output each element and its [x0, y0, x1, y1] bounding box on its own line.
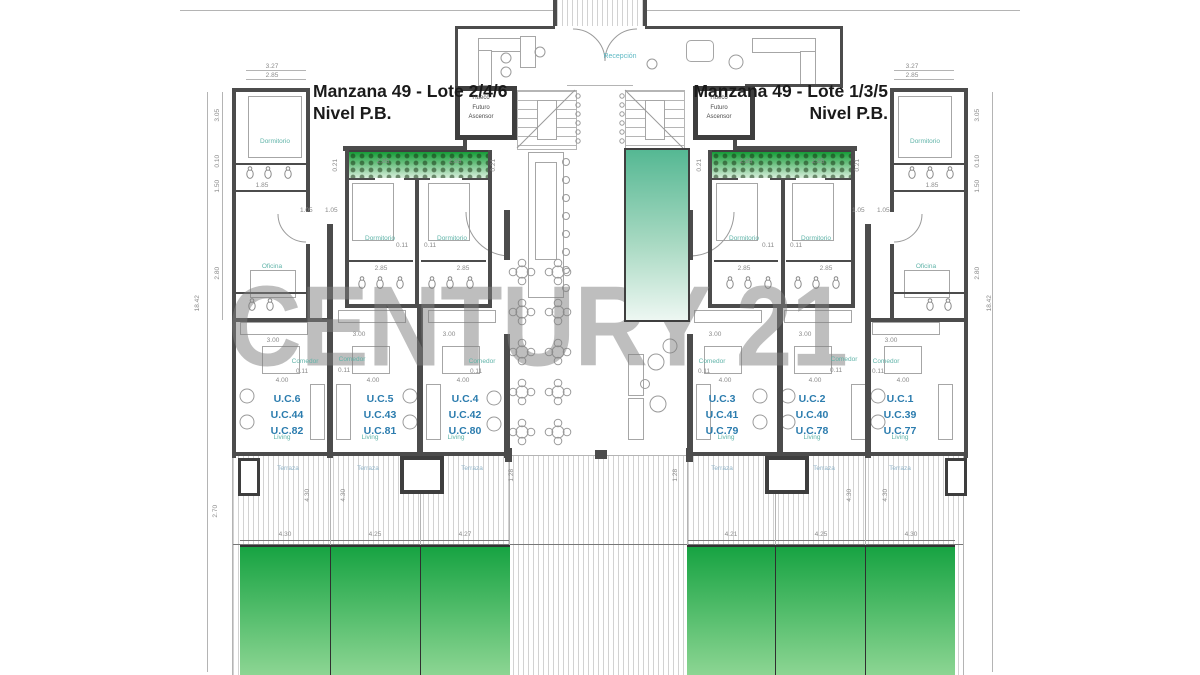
room-label-dormitorio: Dormitorio	[430, 236, 474, 243]
dim-label: 4.30	[896, 532, 926, 539]
dim-label: 0.21	[491, 159, 498, 172]
dim-label: 2.85	[440, 159, 470, 166]
terrace-label: Terraza	[268, 466, 308, 473]
dim-label: 1.50	[215, 180, 222, 193]
dim-label: 0.11	[338, 368, 350, 375]
elevator-label-left: Hueco Futuro Ascensor	[455, 94, 507, 123]
wall	[894, 163, 964, 165]
dim-label: 2.85	[811, 266, 841, 273]
wall	[890, 244, 894, 322]
room-label-oficina: Oficina	[250, 264, 294, 271]
wall	[687, 452, 964, 456]
floor-plan: CENTURY 21 Manzana 49 - Lote 2/4/6 Nivel…	[0, 0, 1200, 675]
room-label-comedor: Comedor	[824, 357, 864, 364]
wall	[840, 26, 843, 88]
dim-label: 2.85	[897, 73, 927, 80]
dim-label: 4.00	[800, 378, 830, 385]
terrace-planter	[765, 456, 809, 494]
dim-label: 3.27	[257, 64, 287, 71]
dim-label: 0.11	[424, 243, 436, 250]
dim-label: 4.25	[806, 532, 836, 539]
dim-label: 3.27	[897, 64, 927, 71]
terrace-label: Terraza	[452, 466, 492, 473]
dim-label: 2.80	[975, 267, 982, 280]
dim-label: 4.00	[358, 378, 388, 385]
dim-label: 4.00	[267, 378, 297, 385]
unit-codes: U.C.5 U.C.43 U.C.81	[345, 392, 415, 439]
dim-label: 2.85	[803, 159, 833, 166]
room-label-comedor: Comedor	[692, 359, 732, 366]
wall	[866, 318, 968, 322]
dim-label: 4.30	[305, 489, 312, 502]
terrace-step	[595, 450, 607, 459]
dim-label: 0.10	[215, 155, 222, 168]
dim-label: 0.11	[872, 369, 884, 376]
wall	[894, 190, 964, 192]
dim-label: 2.85	[448, 266, 478, 273]
dim-label: 18.42	[195, 295, 202, 311]
terrace-planter	[945, 458, 967, 496]
wall	[236, 163, 306, 165]
reception-label: Recepción	[580, 53, 660, 60]
garden-divider	[420, 545, 421, 675]
wall	[236, 190, 306, 192]
terrace-planter	[238, 458, 260, 496]
dim-label: 4.21	[716, 532, 746, 539]
dim-label: 1.05	[877, 208, 890, 215]
dim-label: 3.00	[258, 338, 288, 345]
century21-watermark: CENTURY 21	[228, 262, 847, 393]
room-label-dormitorio: Dormitorio	[253, 139, 297, 146]
wall	[890, 88, 968, 92]
garden-divider	[865, 545, 866, 675]
wall	[645, 26, 843, 29]
dim-label: 4.30	[883, 489, 890, 502]
room-label-comedor: Comedor	[332, 357, 372, 364]
dim-label: 3.05	[975, 109, 982, 122]
garden-right	[687, 545, 955, 675]
dim-label: 4.30	[847, 489, 854, 502]
room-label-oficina: Oficina	[904, 264, 948, 271]
dim-label: 3.00	[434, 332, 464, 339]
dim-label: 3.00	[876, 338, 906, 345]
dim-label: 0.21	[333, 159, 340, 172]
room-label-comedor: Comedor	[285, 359, 325, 366]
dim-label: 4.27	[450, 532, 480, 539]
unit-codes: U.C.1 U.C.39 U.C.77	[865, 392, 935, 439]
dim-label: 2.85	[366, 266, 396, 273]
dim-label: 3.05	[215, 109, 222, 122]
wall	[964, 322, 968, 458]
dim-label: 0.21	[855, 159, 862, 172]
terrace-label: Terraza	[880, 466, 920, 473]
dim-label: 0.21	[697, 159, 704, 172]
terrace-post	[686, 448, 693, 462]
dim-label: 2.85	[731, 159, 761, 166]
dim-label: 0.11	[830, 368, 842, 375]
room-label-dormitorio: Dormitorio	[903, 139, 947, 146]
dim-label: 2.85	[368, 159, 398, 166]
wall	[306, 88, 310, 212]
terrace-label: Terraza	[702, 466, 742, 473]
room-label-comedor: Comedor	[866, 359, 906, 366]
dim-label: 1.28	[509, 469, 516, 482]
unit-codes: U.C.4 U.C.42 U.C.80	[430, 392, 500, 439]
unit-codes: U.C.3 U.C.41 U.C.79	[687, 392, 757, 439]
dim-label: 1.05	[852, 208, 865, 215]
unit-codes: U.C.6 U.C.44 U.C.82	[252, 392, 322, 439]
elevator-label-right: Hueco Futuro Ascensor	[693, 94, 745, 123]
dim-label: 1.50	[975, 180, 982, 193]
pool	[624, 148, 690, 322]
garden-divider	[775, 545, 776, 675]
dim-label: 2.70	[213, 505, 220, 518]
dim-label: 4.30	[341, 489, 348, 502]
wall	[643, 0, 647, 26]
garden-left	[240, 545, 510, 675]
wall	[894, 292, 964, 294]
dim-label: 0.11	[762, 243, 774, 250]
dim-label: 3.00	[344, 332, 374, 339]
terrace-post	[505, 448, 512, 462]
terrace-label: Terraza	[348, 466, 388, 473]
dim-label: 1.05	[325, 208, 338, 215]
garden-divider	[330, 545, 331, 675]
wall	[232, 452, 510, 456]
dim-label: 3.00	[700, 332, 730, 339]
unit-codes: U.C.2 U.C.40 U.C.78	[777, 392, 847, 439]
dim-label: 0.11	[790, 243, 802, 250]
dim-label: 1.85	[247, 183, 277, 190]
room-label-dormitorio: Dormitorio	[722, 236, 766, 243]
dim-label: 0.11	[396, 243, 408, 250]
wall	[232, 88, 310, 92]
dim-label: 0.11	[470, 369, 482, 376]
wall	[504, 210, 510, 260]
wall	[455, 26, 555, 29]
dim-label: 1.05	[300, 208, 313, 215]
dim-label: 4.00	[888, 378, 918, 385]
dim-label: 2.85	[729, 266, 759, 273]
dim-label: 1.28	[673, 469, 680, 482]
dim-label: 0.11	[698, 369, 710, 376]
wall	[890, 88, 894, 212]
dim-label: 18.42	[987, 295, 994, 311]
dim-label: 1.85	[917, 183, 947, 190]
dim-label: 4.00	[710, 378, 740, 385]
dim-label: 0.10	[975, 155, 982, 168]
dim-label: 3.00	[790, 332, 820, 339]
wall	[964, 88, 968, 322]
dim-label: 0.11	[296, 369, 308, 376]
wall	[553, 0, 557, 26]
dim-label: 4.25	[360, 532, 390, 539]
terrace-planter	[400, 456, 444, 494]
dim-label: 2.80	[215, 267, 222, 280]
room-label-comedor: Comedor	[462, 359, 502, 366]
dim-label: 4.30	[270, 532, 300, 539]
dim-label: 2.85	[257, 73, 287, 80]
terrace-label: Terraza	[804, 466, 844, 473]
wall	[455, 26, 458, 88]
dim-label: 4.00	[448, 378, 478, 385]
wall	[851, 150, 855, 308]
